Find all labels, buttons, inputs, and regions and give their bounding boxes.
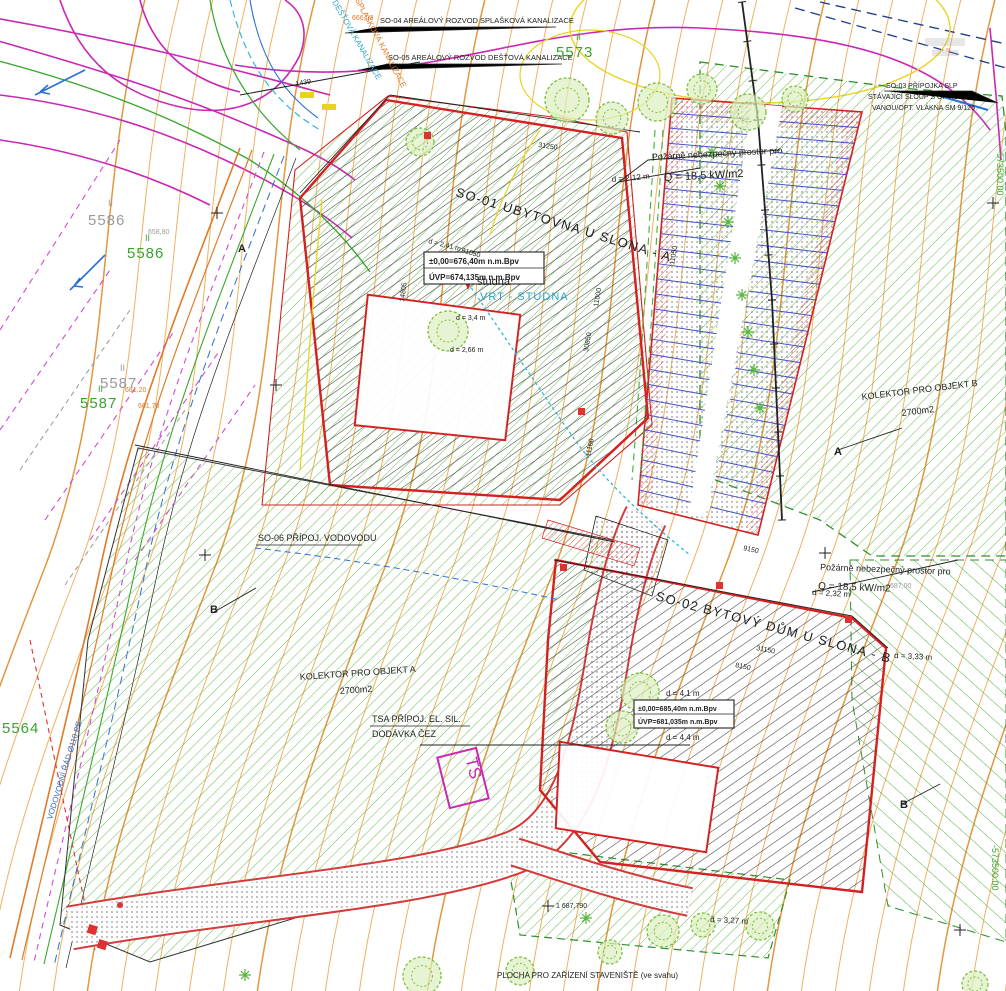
dim-d44: d = 4,4 m [666,733,700,742]
label-so03-3: VANOU/OPT. VLÁKNA SM 9/125 [872,103,975,112]
dim-d212: d = 2,12 m [611,172,650,184]
grid-coordinate-top: -573500.00 [995,150,1005,196]
spot-661: 661,70 [138,403,160,410]
spot-658: 658,80 [148,229,170,236]
label-so03-1: SO-03 PŘÍPOJKA SLP [886,81,958,90]
label-vrt-studna: VRT - STUDNA [480,291,569,303]
parcel-5573: 5573 [556,44,593,61]
label-tsa-1: TSA PŘÍPOJ. EL. SIL. [372,714,461,724]
elevation-box-b: ±0,00=685,40m n.m.Bpv ÚVP=681,035m n.m.B… [634,700,734,728]
elevation-a-line1: ±0,00=676,40m n.m.Bpv [429,257,520,266]
spot-681: 681,20 [125,387,147,394]
meas-1439: 1439 [295,78,312,88]
parcel-5564: 5564 [2,720,39,737]
dim-d41: d = 4,1 m [666,689,700,698]
parcel-tick: II [576,32,581,42]
elevation-b-line1: ±0,00=685,40m n.m.Bpv [638,706,717,713]
elevation-b-line2: ÚVP=681,035m n.m.Bpv [638,717,718,726]
meas-9150: 9150 [743,545,760,555]
spot-1687: 1 687,790 [556,903,587,910]
section-a-1: A [238,243,246,255]
label-tsa-2: DODÁVKA ČEZ [372,729,437,739]
label-so04: SO-04 AREÁLOVÝ ROZVOD SPLAŠKOVÁ KANALIZA… [380,16,574,25]
label-so05: SO-05 AREÁLOVÝ ROZVOD DEŠŤOVÁ KANALIZACE [388,53,573,62]
dim-d266: d = 2,66 m [450,347,483,354]
label-so06: SO-06 PŘÍPOJ. VODOVODU [258,533,377,543]
dim-d34: d = 3,4 m [456,315,486,322]
section-a-2: A [834,446,842,458]
section-b-1: B [210,604,218,616]
parcel-tick: II [98,384,103,394]
spot-687: 687,00 [890,583,912,590]
parcel-5586-gray: 5586 [88,212,125,229]
site-plan-drawing: TS ±0,00=676,40m n.m.Bpv ÚVP=674,135m n.… [0,0,1006,991]
section-b-2: B [900,799,908,811]
label-site-area: PLOCHA PRO ZAŘÍZENÍ STAVENIŠTĚ (ve svahu… [497,971,678,980]
watermark [925,38,965,56]
site-plan-canvas: TS ±0,00=676,40m n.m.Bpv ÚVP=674,135m n.… [0,0,1006,991]
spot-666: 666,03 [352,15,374,22]
parcel-tick: II [120,363,125,373]
dim-d232: d = 2,32 m [812,588,851,599]
label-studna: studna [477,276,511,288]
grid-coordinate-bottom: -573500.00 [990,845,1000,891]
parcel-tick: II [108,198,113,208]
parcel-5587-green: 5587 [80,395,117,412]
parcel-5586-green: 5586 [127,245,164,262]
